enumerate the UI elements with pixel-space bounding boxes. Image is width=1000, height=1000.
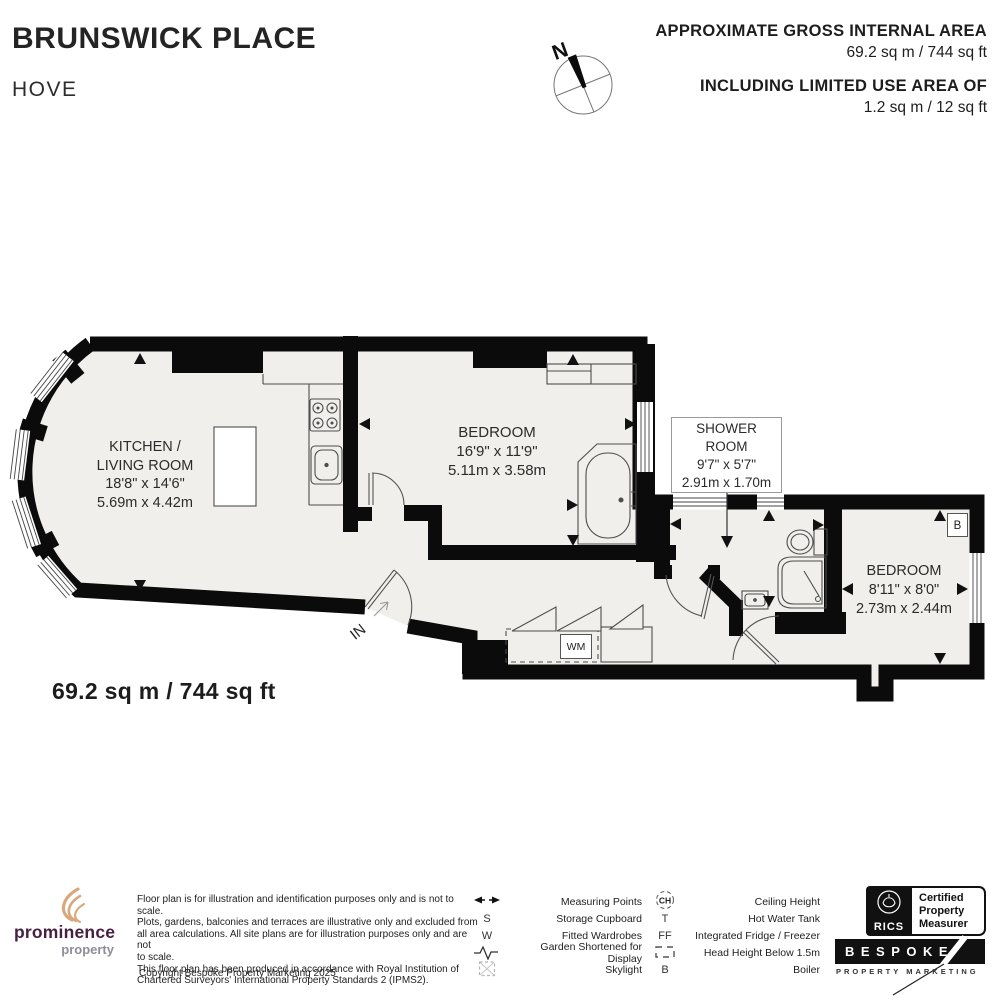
limited-use-value: 1.2 sq m / 12 sq ft	[655, 99, 987, 117]
prominence-flame-icon	[14, 884, 118, 924]
area-summary: APPROXIMATE GROSS INTERNAL AREA 69.2 sq …	[655, 22, 987, 117]
copyright-text: Copyright Bespoke Property Marketing 202…	[139, 968, 336, 979]
storage-cupboard-symbol: S	[466, 913, 508, 925]
compass-icon: N	[544, 38, 620, 123]
window-icon	[673, 495, 727, 510]
legend-column-1: Measuring Points S Storage Cupboard W Fi…	[466, 893, 642, 979]
prominence-name: prominence	[14, 922, 118, 943]
limited-use-label: INCLUDING LIMITED USE AREA OF	[655, 77, 987, 96]
page-title: BRUNSWICK PLACE	[12, 22, 316, 56]
hot-water-tank-symbol: T	[644, 913, 686, 925]
bespoke-sub: PROPERTY MARKETING	[836, 967, 979, 976]
ceiling-height-icon: CH	[644, 890, 686, 913]
boiler-marker: B	[947, 513, 968, 537]
rics-name: RICS	[866, 921, 912, 933]
total-area-label: 69.2 sq m / 744 sq ft	[52, 678, 276, 705]
window-icon	[637, 402, 653, 472]
garden-shortened-icon	[466, 944, 508, 963]
fitted-wardrobes-symbol: W	[466, 930, 508, 942]
room-label-bedroom2: BEDROOM 8'11" x 8'0" 2.73m x 2.44m	[814, 562, 994, 619]
gia-value: 69.2 sq m / 744 sq ft	[655, 44, 987, 62]
bespoke-slash-icon	[860, 933, 990, 997]
prominence-sub: property	[14, 942, 114, 957]
rics-certified-panel: Certified Property Measurer	[912, 886, 986, 936]
room-label-shower-callout: SHOWER ROOM 9'7" x 5'7" 2.91m x 1.70m	[671, 417, 782, 493]
room-label-kitchen: KITCHEN / LIVING ROOM 18'8" x 14'6" 5.69…	[55, 438, 235, 512]
prominence-logo: prominence property	[14, 884, 118, 964]
boiler-symbol: B	[644, 964, 686, 976]
room-label-bedroom1: BEDROOM 16'9" x 11'9" 5.11m x 3.58m	[407, 423, 587, 480]
skylight-icon	[466, 961, 508, 980]
page-subtitle: HOVE	[12, 78, 78, 102]
washing-machine-marker: WM	[560, 634, 592, 659]
rics-lion-icon	[866, 886, 912, 920]
rics-badge: RICS	[866, 886, 912, 936]
compass-north-label: N	[549, 38, 571, 65]
gia-label: APPROXIMATE GROSS INTERNAL AREA	[655, 22, 987, 41]
measuring-points-icon	[466, 894, 508, 909]
legend-column-2: CH Ceiling Height T Hot Water Tank FF In…	[644, 893, 820, 979]
window-icon	[757, 495, 784, 510]
svg-text:CH: CH	[659, 896, 671, 906]
fridge-freezer-symbol: FF	[644, 930, 686, 942]
head-height-icon	[644, 945, 686, 962]
